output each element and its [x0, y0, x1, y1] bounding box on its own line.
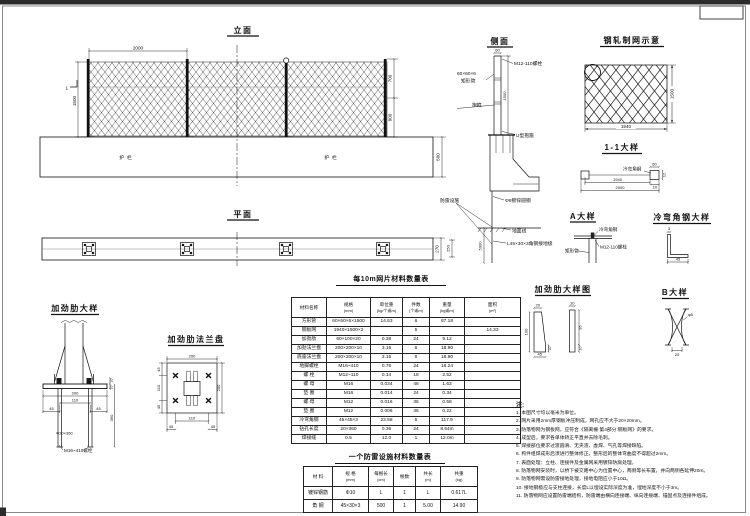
- cell-unit-weight: 0.14: [371, 372, 403, 381]
- cell-weight: 12.0m: [430, 435, 465, 444]
- post-section: [184, 382, 200, 396]
- detail-a-title: A大样: [570, 211, 596, 221]
- cell-unit-weight: 3.15: [371, 354, 403, 363]
- plate-outline: [167, 363, 217, 413]
- section-1-1-detail: 1-1大样 冷弯角钢 60 12 10 1940 2000: [581, 142, 667, 193]
- dim-b45b: 45: [211, 424, 216, 429]
- table-row: 焊接缝 0.5 12.0 1 12.0m: [292, 435, 521, 444]
- mesh-dim-h: 1500: [670, 88, 675, 99]
- title-corner-box: [700, 6, 743, 19]
- angle-label: 冷弯角钢: [623, 166, 642, 173]
- cell-material: 加劲法兰盘: [292, 345, 327, 354]
- plan-dim: 270: [435, 245, 440, 253]
- table-header-row: 材 料 规 格 (mm) 每根长 (cm) 根数: [304, 467, 478, 487]
- table-row: 方形管 60×60×6×1500 14.53 6 87.18: [292, 318, 521, 327]
- dim-20: 20: [535, 303, 540, 308]
- cell-total-weight: 0.617L: [441, 487, 478, 500]
- cold-bent-angle-detail: 冷弯角钢大样 3 45: [653, 212, 711, 264]
- table-row: 钻孔长度 20×360 0.36 24 8.64m: [292, 426, 521, 435]
- detail-b-title: B大样: [662, 287, 688, 297]
- drawing-sheet: 立面 2000 护栏 护栏 1500 1 700 800 500: [0, 0, 750, 516]
- dim-3: 3: [668, 226, 671, 231]
- hole-label: Φ20×360: [56, 431, 73, 436]
- angle-detail-title: 冷弯角钢大样: [654, 212, 711, 222]
- table-row: 螺 母 M12 0.016 36 0.58: [292, 399, 521, 408]
- cell-count: 1: [394, 487, 416, 500]
- cell-material: 钢板网: [292, 327, 327, 336]
- notes-list: 1. 本图尺寸均以毫米为单位。 2. 网片采用2mm厚钢板冲压制成，网孔应不大于…: [516, 410, 746, 501]
- table-row: 垫 圈 M16 0.014 24 0.34: [292, 390, 521, 399]
- nut: [57, 378, 62, 384]
- note-item: 3. 防落物网为钢板网，应符合《隔离栅 第4部分:钢板网》的要求。: [516, 427, 746, 435]
- cell-weight: 9.12: [430, 336, 465, 345]
- note-item: 4. 成型后，要求各单体矫正平直并去除毛刺。: [516, 435, 746, 443]
- column-header: 面积 (m²): [465, 298, 521, 318]
- cell-weight: 0.34: [430, 390, 465, 399]
- cell-unit-weight: 0.006: [371, 408, 403, 417]
- cell-spec: M12~110: [327, 372, 371, 381]
- rib-column: [65, 323, 83, 384]
- cell-area: [465, 426, 521, 435]
- column-header: 件数 (个或m): [403, 298, 430, 318]
- note-item: 1. 本图尺寸均以毫米为单位。: [516, 410, 746, 418]
- cell-count: 48: [403, 381, 430, 390]
- flange-plate: [43, 384, 107, 389]
- mesh-materials-table-title: 每10m网片材料数量表: [336, 274, 446, 286]
- cell-unit-weight: 0.76: [371, 363, 403, 372]
- sec11-title: 1-1大样: [604, 142, 639, 152]
- cell-length-each: 500: [369, 500, 394, 513]
- detail-a: A大样 冷弯角钢 M12-110螺栓 矩形管: [565, 211, 627, 263]
- column-header: 材 料: [304, 467, 333, 487]
- table-row: 角 钢 45×30×3 500 1 5.00 14.90: [304, 500, 478, 513]
- column-header: 单位重 (kg/个或m): [371, 298, 403, 318]
- cell-weight: 2.52: [430, 372, 465, 381]
- note-item: 6. 构件组焊成形后须进行整体修正，整形后的整体弯曲度不得超过2mm。: [516, 451, 746, 459]
- cell-weight: 0.22: [430, 408, 465, 417]
- dim-10a: 10: [548, 347, 552, 351]
- ground-label: 地面线: [512, 228, 527, 235]
- cell-area: [465, 381, 521, 390]
- dim-10c: 10: [579, 347, 583, 351]
- cell-area: [465, 372, 521, 381]
- cell-material: 底座法兰盘: [292, 354, 327, 363]
- cell-material: 地脚螺栓: [292, 363, 327, 372]
- cell-area: [465, 363, 521, 372]
- post: [186, 59, 189, 137]
- cell-spec: 200×200×10: [327, 354, 371, 363]
- cell-weight: [430, 327, 465, 336]
- rib-flange-title: 加劲肋法兰盘: [167, 334, 225, 344]
- bolt-label: M12-110螺栓: [600, 244, 627, 251]
- cell-weight: 0.58: [430, 399, 465, 408]
- concrete-base: [40, 137, 433, 177]
- cell-unit-weight: [371, 327, 403, 336]
- cell-weight: 18.90: [430, 345, 465, 354]
- cell-material: 方形管: [292, 318, 327, 327]
- elev-dim-top: 2000: [133, 46, 144, 51]
- dim-95: 95: [578, 325, 583, 330]
- cell-area: [465, 318, 521, 327]
- dim-l45a: 45: [156, 367, 161, 372]
- cell-area: [465, 408, 521, 417]
- note-item: 9. 防落物网需设防雷接地处理，接地电阻应小于10Ω。: [516, 476, 746, 484]
- elev-dim-base: 500: [436, 153, 441, 161]
- dim-l45b: 45: [156, 404, 161, 409]
- rib-figure-title: 加劲肋大样图: [534, 284, 592, 294]
- dim-45: 45: [537, 352, 542, 357]
- elev-dim-r2: 800: [388, 113, 393, 121]
- side-dim-top: 60: [495, 48, 500, 53]
- mesh-schematic: 钢轧制网示意 1940 1500: [585, 35, 677, 132]
- note-item: 7. 表面处理：立柱、连接件及金属网采用镀锌防腐处理。: [516, 460, 746, 468]
- cell-weight: 18.90: [430, 354, 465, 363]
- mesh-panel: [585, 65, 667, 123]
- bolt: [591, 233, 595, 239]
- dim-45b: 45: [96, 406, 101, 411]
- note-item: 2. 网片采用2mm厚钢板冲压制成，网孔应不大于20×20mm。: [516, 418, 746, 426]
- table-row: 垫 圈 M12 0.006 36 0.22: [292, 408, 521, 417]
- cell-count: 18: [403, 372, 430, 381]
- notes: 注: 1. 本图尺寸均以毫米为单位。 2. 网片采用2mm厚钢板冲压制成，网孔应…: [516, 400, 746, 501]
- cell-unit-weight: 0.034: [371, 381, 403, 390]
- cell-spec: M12: [327, 399, 371, 408]
- angle-rod-label: L45×30×3角钢接地极: [507, 240, 553, 247]
- column-header: 重量 (kg或m): [430, 298, 465, 318]
- cell-material: 螺 栓: [292, 372, 327, 381]
- column-header: 规格 (mm): [327, 298, 371, 318]
- fence-mesh: [88, 62, 387, 136]
- dim-10: 10: [653, 185, 658, 190]
- table-row: 螺 母 M16 0.034 48 1.63: [292, 381, 521, 390]
- cell-weight: 87.18: [430, 318, 465, 327]
- dim-200: 200: [72, 391, 79, 396]
- detail-b: B大样 20 φ5: [662, 287, 694, 357]
- section-mark-1: 1: [66, 86, 69, 91]
- nut: [87, 378, 92, 384]
- table-header-row: 材料名称 规格 (mm) 单位重 (kg/个或m) 件数 (个或m): [292, 298, 521, 318]
- cell-spec: 0.5: [327, 435, 371, 444]
- cell-spec: 1940×1500×2: [327, 327, 371, 336]
- cell-spec: M12: [327, 408, 371, 417]
- angle-label: 冷弯角钢: [599, 226, 618, 233]
- mesh-dim-w: 1940: [621, 124, 632, 129]
- table-row: 加劲法兰盘 200×200×10 3.15 6 18.90: [292, 345, 521, 354]
- rib-detail: 加劲肋大样 200 110 45 45 10 10 360 Φ20×360 M1…: [43, 303, 115, 454]
- cell-count: 1: [403, 435, 430, 444]
- rib-figure: 加劲肋大样图 20 100 45 10 10 95 10: [524, 284, 592, 357]
- elevation-view: 立面 2000 护栏 护栏 1500 1 700 800 500: [40, 25, 446, 186]
- lightning-table-title: 一个防雷设施材料数量表: [335, 452, 445, 464]
- table-row: 地脚螺栓 M16~410 0.76 24 18.24: [292, 363, 521, 372]
- wire-dia-label: φ5: [688, 312, 694, 317]
- column-header: 共重 (kg): [441, 467, 478, 487]
- guardrail-label: 护栏: [119, 154, 135, 161]
- cell-area: [465, 399, 521, 408]
- cell-total-weight: 14.90: [441, 500, 478, 513]
- guardrail-label: 护栏: [324, 154, 340, 161]
- rib-shape: [534, 312, 546, 352]
- depth-dim: 5000: [478, 241, 483, 251]
- dim-60: 60: [652, 162, 657, 167]
- cell-weight: 1.63: [430, 381, 465, 390]
- corner-mark: [0, 508, 6, 516]
- lightning-label: 防雷设施: [440, 197, 459, 204]
- cell-area: [465, 354, 521, 363]
- cell-unit-weight: 3.15: [371, 345, 403, 354]
- anchor-bolt-label: M16~410螺栓: [64, 447, 93, 454]
- bolt-label: M12-110螺栓: [514, 60, 542, 67]
- mesh-knot: [665, 309, 689, 345]
- cell-total-length: 5.00: [416, 500, 441, 513]
- cell-weight: 8.64m: [430, 426, 465, 435]
- dim-110: 110: [72, 398, 79, 403]
- tube-label: 矩形管: [461, 78, 476, 85]
- column-header: 材料名称: [292, 298, 327, 318]
- cell-total-length: L: [416, 487, 441, 500]
- stub-dim: 250: [446, 244, 451, 251]
- rib-flange-plate: 加劲肋法兰盘 200 45 110 45 200 110 45 45: [156, 334, 225, 432]
- cell-count: 5: [403, 417, 430, 426]
- grounding-eye: [284, 58, 289, 63]
- table-row: 钢板网 1940×1500×2 5 14.33: [292, 327, 521, 336]
- cell-material: 加劲肋: [292, 336, 327, 345]
- table-row: 加劲肋 60×100×20 0.38 24 9.12: [292, 336, 521, 345]
- barrier-profile: [490, 135, 539, 191]
- dim-b110: 110: [189, 416, 196, 421]
- clamp-label: 抱箍: [472, 102, 482, 109]
- tube-size-label: 60×60×6: [457, 71, 476, 77]
- bolt-holes: [173, 373, 211, 403]
- cell-count: 36: [403, 408, 430, 417]
- dim-45a: 45: [49, 406, 54, 411]
- note-item: 10. 接地钢极应与支柱连接，长度L以埋设实际深度为准，埋地深度不小于3m。: [516, 485, 746, 493]
- note-item: 8. 防落物网安装时，以桥下被交路中心为位置中心，两侧等长布置，并向两侧各延伸2…: [516, 468, 746, 476]
- cell-material: 冷弯角钢: [292, 417, 327, 426]
- note-item: 11. 防落物网应设置防雷端结构，防雷端由横向连接端、纵向连接端、锚固点及连接件…: [516, 493, 746, 501]
- cell-material: 角 钢: [304, 500, 333, 513]
- cell-spec: 60×100×20: [327, 336, 371, 345]
- cell-area: 14.33: [465, 327, 521, 336]
- side-post: [494, 56, 501, 135]
- rod-label: Φ8镀锌圆钢: [505, 197, 531, 204]
- elevation-title: 立面: [234, 25, 253, 35]
- plan-title: 平面: [234, 210, 253, 219]
- post: [384, 59, 387, 137]
- cell-area: [465, 345, 521, 354]
- mesh-materials-table: 材料名称 规格 (mm) 单位重 (kg/个或m) 件数 (个或m): [291, 297, 521, 444]
- cell-spec: 60×60×6×1500: [327, 318, 371, 327]
- dim-1940: 1940: [613, 177, 623, 182]
- cell-spec: M16: [327, 381, 371, 390]
- cell-count: 36: [403, 399, 430, 408]
- cell-weight: 117.9: [430, 417, 465, 426]
- elev-dim-r1: 700: [388, 74, 393, 82]
- dim-12: 12: [662, 172, 667, 177]
- dim-100: 100: [524, 328, 529, 335]
- cell-material: 镀锌钢筋: [304, 487, 333, 500]
- cell-material: 钻孔长度: [292, 426, 327, 435]
- cell-spec: M16: [327, 390, 371, 399]
- side-title: 侧面: [491, 36, 510, 46]
- cell-material: 焊接缝: [292, 435, 327, 444]
- table-row: 螺 栓 M12~110 0.14 18 2.52: [292, 372, 521, 381]
- dim-45: 45: [676, 257, 681, 262]
- dim-2000: 2000: [616, 185, 626, 190]
- cell-length-each: L: [369, 487, 394, 500]
- note-item: 5. 焊接部位要求过渡圆滑、无夹渣、虚焊、气孔等焊接缺陷。: [516, 443, 746, 451]
- rib-plate-section: [570, 310, 576, 352]
- column-header: 每根长 (cm): [369, 467, 394, 487]
- cell-unit-weight: 23.58: [371, 417, 403, 426]
- cell-unit-weight: 0.38: [371, 336, 403, 345]
- cell-material: 螺 母: [292, 399, 327, 408]
- cell-count: 24: [403, 336, 430, 345]
- cell-unit-weight: 14.53: [371, 318, 403, 327]
- cell-count: 24: [403, 390, 430, 399]
- dim-20: 20: [675, 352, 680, 357]
- dim-b45a: 45: [169, 424, 174, 429]
- cell-count: 24: [403, 426, 430, 435]
- cell-count: 24: [403, 363, 430, 372]
- notes-title: 注:: [516, 400, 746, 409]
- cell-unit-weight: 0.016: [371, 399, 403, 408]
- column-header: 共长 (m): [416, 467, 441, 487]
- lightning-materials-table: 材 料 规 格 (mm) 每根长 (cm) 根数: [303, 466, 478, 513]
- window-top-edge: [0, 0, 750, 5]
- plan-view: 平面 270: [42, 210, 445, 266]
- tube-label: 矩形管: [565, 248, 579, 255]
- cell-area: [465, 336, 521, 345]
- dim-360: 360: [109, 414, 114, 421]
- post: [285, 59, 288, 137]
- dim-10b: 10: [110, 386, 114, 390]
- cell-count: 6: [403, 345, 430, 354]
- cell-area: [465, 390, 521, 399]
- side-dim-post: 1500: [502, 91, 507, 101]
- cell-unit-weight: 0.014: [371, 390, 403, 399]
- cell-spec: Φ10: [333, 487, 369, 500]
- elev-dim-left: 1500: [72, 95, 77, 106]
- cell-spec: M16~410: [327, 363, 371, 372]
- dim-r200: 200: [216, 384, 221, 391]
- cell-area: [465, 435, 521, 444]
- cell-count: 6: [403, 354, 430, 363]
- cell-unit-weight: 0.36: [371, 426, 403, 435]
- column-header: 根数: [394, 467, 416, 487]
- cell-unit-weight: 12.0: [371, 435, 403, 444]
- cell-spec: 200×200×10: [327, 345, 371, 354]
- cell-weight: 18.24: [430, 363, 465, 372]
- mesh-title: 钢轧制网示意: [604, 35, 661, 45]
- cell-count: 6: [403, 318, 430, 327]
- table-row: 冷弯角钢 45×45×3 23.58 5 117.9: [292, 417, 521, 426]
- cell-count: 5: [403, 327, 430, 336]
- table-row: 镀锌钢筋 Φ10 L 1 L 0.617L: [304, 487, 478, 500]
- side-view: 侧面 60 1500 M12-110螺栓 60×60×6 矩形管 抱箍 U型抱箍…: [440, 36, 553, 263]
- u-clamp-label: U型抱箍: [516, 132, 534, 139]
- cell-material: 螺 母: [292, 381, 327, 390]
- dim-l110: 110: [156, 384, 161, 391]
- table-row: 底座法兰盘 200×200×10 3.15 6 18.90: [292, 354, 521, 363]
- dim-top-200: 200: [189, 354, 196, 359]
- rib-title: 加劲肋大样: [50, 303, 99, 313]
- cell-spec: 20×360: [327, 426, 371, 435]
- dim-10a: 10: [110, 379, 114, 383]
- column-header: 规 格 (mm): [333, 467, 369, 487]
- dim-10b: 10: [570, 301, 575, 306]
- cell-count: 1: [394, 500, 416, 513]
- cell-area: [465, 417, 521, 426]
- cell-material: 垫 圈: [292, 408, 327, 417]
- cell-spec: 45×45×3: [327, 417, 371, 426]
- cell-spec: 45×30×3: [333, 500, 369, 513]
- post: [87, 59, 90, 137]
- cell-material: 垫 圈: [292, 390, 327, 399]
